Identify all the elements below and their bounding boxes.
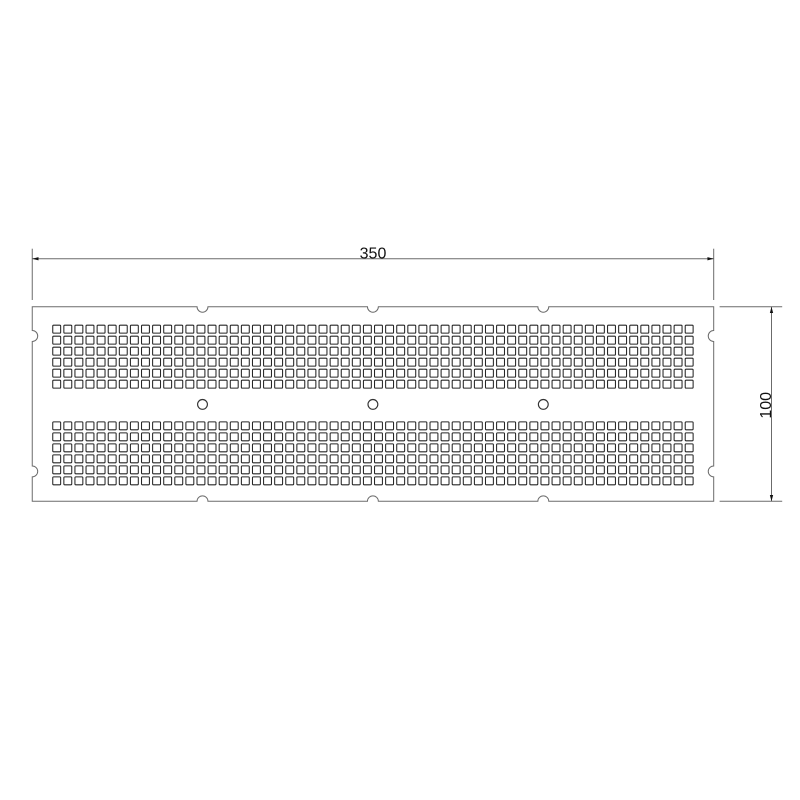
svg-text:350: 350 [360, 245, 387, 262]
svg-text:100: 100 [758, 392, 775, 419]
